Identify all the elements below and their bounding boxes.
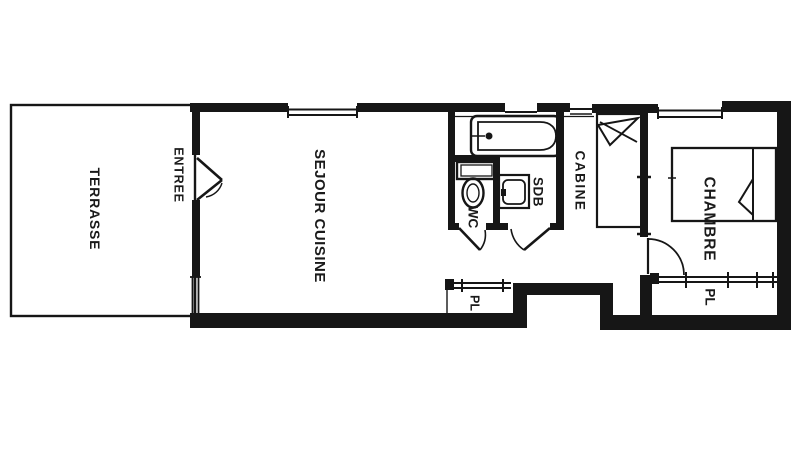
chambre-label: CHAMBRE [701,177,718,262]
window-sejour-left [190,277,201,313]
bathtub-faucet [486,133,493,140]
sdb-label: SDB [530,177,545,207]
entrance-door [197,158,222,200]
double-bed-fixture [668,148,776,221]
floor-plan-drawing: TERRASSE ENTREE SEJOUR CUISINE WC SDB CA… [0,0,800,452]
sejour-cuisine-label: SEJOUR CUISINE [311,149,328,283]
entree-label: ENTREE [172,147,186,203]
window-chambre-top [658,107,722,119]
placard-hall-label: PL [468,295,482,311]
window-sejour-top [288,106,357,118]
bunk-bed-fixture [597,114,644,227]
wc-label: WC [465,206,480,229]
chambre-door [648,238,684,275]
sdb-door [511,228,550,250]
washbasin-tap [501,189,506,196]
wc-door [459,228,485,250]
floor-plan-page: TERRASSE ENTREE SEJOUR CUISINE WC SDB CA… [0,0,800,452]
toilet-fixture [457,162,496,208]
bathtub-fixture [471,116,560,156]
window-cabine-top [570,109,592,114]
sliding-closet-right [650,272,777,288]
placard-chambre-label: PL [702,288,717,305]
terrasse-label: TERRASSE [87,168,103,251]
washbasin-fixture [499,175,529,208]
room-labels: TERRASSE ENTREE SEJOUR CUISINE WC SDB CA… [87,147,717,311]
cabine-label: CABINE [572,151,587,212]
